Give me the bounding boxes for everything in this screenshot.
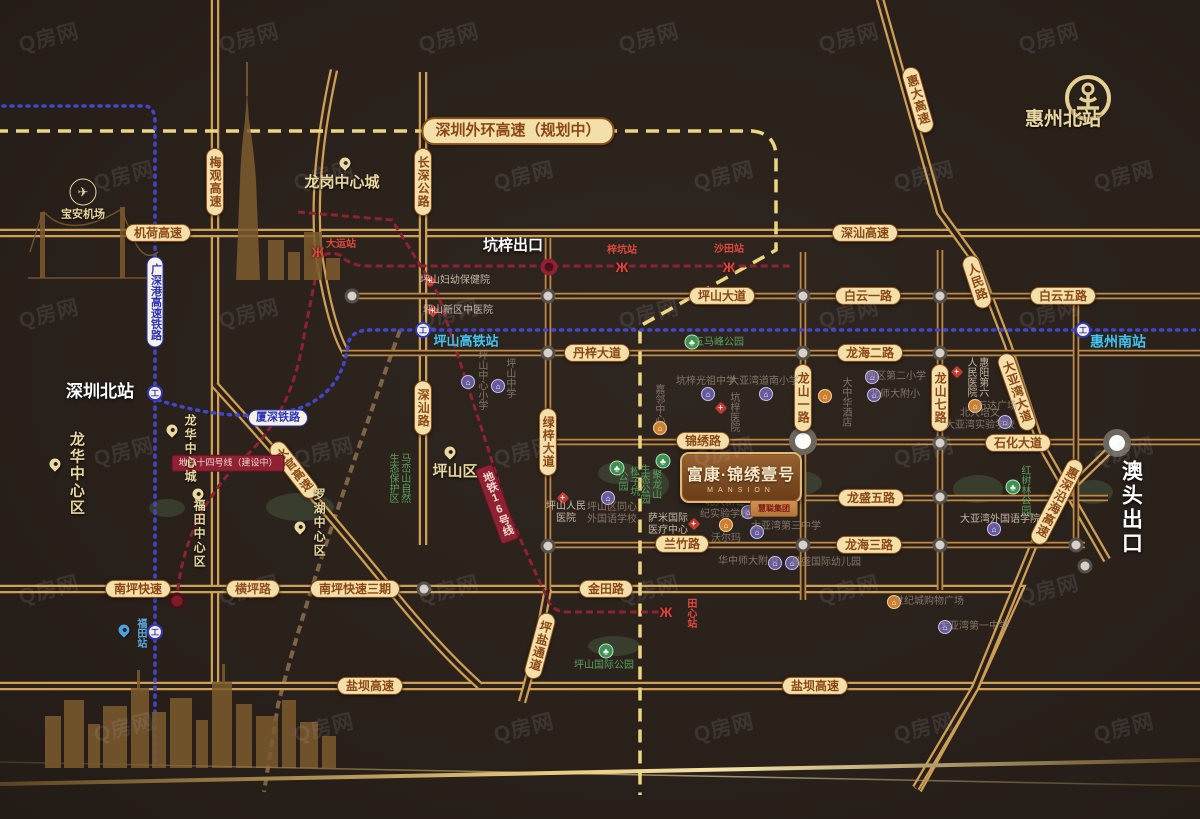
poi-xiqu-2nd-primary: 西区第二小学 <box>866 371 926 383</box>
station-label-huizhou-north: 惠州北站 <box>1025 109 1101 131</box>
junction-dot <box>541 289 556 304</box>
area-label-longhua-district: 龙华中心区 <box>67 432 85 517</box>
junction-dot <box>541 346 556 361</box>
road-label-shenshan-expwy: 深汕高速 <box>832 224 898 242</box>
futian-pin-icon <box>193 489 204 500</box>
exit-label-kengzi: 坑梓出口 <box>483 237 543 255</box>
junction-dot <box>933 346 948 361</box>
road-label-baiyun-1: 白云一路 <box>835 287 901 305</box>
junction-dot <box>933 436 948 451</box>
zikeng-metro-icon: Ж <box>616 259 629 275</box>
shatian-metro-icon: Ж <box>723 259 736 275</box>
dayun-metro-icon: Ж <box>312 244 325 260</box>
poi-walmart: 沃尔玛 <box>711 533 741 545</box>
metro-station-tianxin: 田心站 <box>684 598 696 628</box>
poi-dazhonghua-hotel: 大中华酒店 <box>839 377 851 427</box>
metro-line-16 <box>298 212 662 612</box>
junction-dot <box>796 538 811 553</box>
exit-label-aotou: 澳头出口 <box>1118 460 1143 556</box>
luohu-pin-icon <box>295 522 306 533</box>
park-wumafeng: 五马峰公园 <box>694 337 744 349</box>
metro-station-zikeng: 梓坑站 <box>607 245 637 257</box>
major-junction-dot <box>1103 429 1131 457</box>
road-label-jinxiu: 锦绣路 <box>676 432 730 450</box>
hotel-icon: ⌂ <box>818 389 832 403</box>
skyline-bottom-left <box>45 664 336 768</box>
poi-pingshan-central-primary: 坪山中心小学 <box>475 350 487 410</box>
area-label-baoan-airport: 宝安机场 <box>61 209 105 222</box>
park-maluanshan: 马峦山自然生态保护区 <box>386 453 410 503</box>
road-label-pingshan-ave: 坪山大道 <box>689 287 755 305</box>
road-label-lanzhu: 兰竹路 <box>655 535 709 553</box>
road-label-yanba-e: 盐坝高速 <box>782 677 848 695</box>
school-icon: ⌂ <box>701 387 715 401</box>
junction-dot <box>1078 559 1093 574</box>
junction-dot <box>1069 538 1084 553</box>
poi-dayawan-1st-middle: 大亚湾第一中学 <box>939 621 1009 633</box>
poi-huazhongshida-primary: 华中师大附小 <box>718 556 778 568</box>
poi-sami-medical: 萨米国际医疗中心 <box>648 513 688 537</box>
station-label-shenzhen-north: 深圳北站 <box>66 382 134 402</box>
road-label-jintian: 金田路 <box>579 580 633 598</box>
metro-station-shatian: 沙田站 <box>714 244 744 256</box>
park-julongshan: 聚龙山生态公园 <box>637 464 661 504</box>
road-label-baiyun-5: 白云五路 <box>1030 287 1096 305</box>
junction-dot <box>933 538 948 553</box>
skyline-top-left <box>28 62 340 280</box>
poi-kengzi-hospital: 坑梓医院 <box>727 392 739 432</box>
junction-dot <box>345 289 360 304</box>
park-pingshan-intl: 坪山国际公园 <box>574 660 634 672</box>
school-icon: ⌂ <box>759 387 773 401</box>
area-label-luohu: 罗湖中心区 <box>312 488 326 558</box>
station-label-pingshan-hsr: 坪山高铁站 <box>433 333 498 348</box>
poi-shijicheng-mall: 世纪城购物广场 <box>894 596 964 608</box>
poi-pingshan-middle: 坪山中学 <box>503 358 515 398</box>
junction-dot <box>933 289 948 304</box>
longhua-district-pin-icon <box>50 459 61 470</box>
airport-icon: ✈ <box>70 179 97 206</box>
poi-tongxin-foreign-school: 坪山区同心外国语学校 <box>587 502 637 526</box>
location-map: 富康·锦绣壹号 MANSION 慧聪集团 深圳外环高速（规划中）机荷高速深汕高速… <box>0 0 1200 819</box>
xiashen-rail-line <box>158 330 1200 415</box>
longhua-city-pin-icon <box>167 425 178 436</box>
area-label-longgang: 龙岗中心城 <box>304 174 379 192</box>
kengzi-exit-icon <box>541 259 558 276</box>
poi-daonan-primary: 大亚湾道南小学 <box>729 376 799 388</box>
road-label-shenshan-rd: 深汕路 <box>414 381 432 436</box>
road-label-yanba-w: 盐坝高速 <box>337 677 403 695</box>
poi-dayawan-3rd-middle: 大亚湾第三中学 <box>751 521 821 533</box>
road-label-shenzhen-outer-ring: 深圳外环高速（规划中） <box>421 117 614 145</box>
area-label-futian: 福田中心区 <box>192 499 206 569</box>
poi-jialin-center: 嘉邻中心 <box>652 384 664 424</box>
futian-rail-icon: 工 <box>147 624 163 640</box>
project-logo: 富康·锦绣壹号 MANSION <box>680 452 802 503</box>
poi-wanda-plaza: 万达广场 <box>977 401 1017 413</box>
area-label-pingshan: 坪山区 <box>432 463 477 481</box>
station-label-huizhou-south: 惠州南站 <box>1090 334 1146 351</box>
rail-label-guangshengang: 广深港高速铁路 <box>147 257 164 348</box>
road-label-jihe: 机荷高速 <box>125 224 191 242</box>
junction-dot <box>541 539 556 554</box>
park-icon: ♣ <box>599 644 614 659</box>
road-label-meiguan: 梅观高速 <box>206 148 224 216</box>
park-songzikeng: 松子坑公园 <box>615 466 639 496</box>
poi-dayawan-foreign-college: 大亚湾外国语学院 <box>960 514 1040 526</box>
poi-huiyang-6th-hospital: 惠阳第六人民医院 <box>964 357 988 397</box>
rail-label-xiashen: 厦深铁路 <box>248 410 308 427</box>
road-label-nanping: 南坪快速 <box>105 580 171 598</box>
road-label-shihua: 石化大道 <box>985 434 1051 452</box>
road-label-danzi: 丹梓大道 <box>564 344 630 362</box>
developer-badge: 慧聪集团 <box>750 500 798 517</box>
station-label-futian-hsr: 福田站 <box>134 618 146 648</box>
junction-dot <box>933 490 948 505</box>
line14-station-icon <box>169 593 186 610</box>
park-hongshulin: 红树林公园 <box>1018 465 1030 515</box>
road-label-nanping-3: 南坪快速三期 <box>310 580 400 598</box>
huizhou-south-rail-icon: 工 <box>1075 322 1091 338</box>
pingshan-hsr-rail-icon: 工 <box>415 322 431 338</box>
road-label-hengping: 横坪路 <box>226 580 280 598</box>
junction-dot <box>796 289 811 304</box>
longgang-pin-icon <box>340 158 351 169</box>
road-label-longhai-3: 龙海三路 <box>836 536 902 554</box>
poi-bnu-primary: 北师大附小 <box>870 389 920 401</box>
school-icon: ⌂ <box>461 375 475 389</box>
road-label-longhai-2: 龙海二路 <box>837 344 903 362</box>
road-label-lvzi: 绿梓大道 <box>539 408 557 476</box>
junction-dot <box>417 582 432 597</box>
poi-fuyou-hospital: 坪山妇幼保健院 <box>420 275 490 287</box>
poi-guangzu-middle: 坑梓光祖中学 <box>676 376 736 388</box>
road-label-longshan-1: 龙山一路 <box>794 364 812 432</box>
junction-dot <box>796 346 811 361</box>
shenzhen-north-rail-icon: 工 <box>147 385 163 401</box>
project-name: 富康·锦绣壹号 <box>687 461 795 485</box>
poi-renmin-hospital: 坪山人民医院 <box>546 501 586 525</box>
area-label-longhua-city: 龙华中心城 <box>183 414 197 484</box>
poi-zhongyi-hospital: 坪山新区中医院 <box>423 305 493 317</box>
poi-changsheng-kindergarten: 昌盛国际幼儿园 <box>791 557 861 569</box>
tianxin-metro-icon: Ж <box>660 604 673 620</box>
pingshan-pin-icon <box>445 447 456 458</box>
futian-station-pin-icon <box>119 625 130 636</box>
metro-station-dayun: 大运站 <box>326 239 356 251</box>
project-subtitle: MANSION <box>707 487 775 494</box>
road-label-changshen: 长深公路 <box>414 148 432 216</box>
road-label-longsheng-5: 龙盛五路 <box>838 489 904 507</box>
